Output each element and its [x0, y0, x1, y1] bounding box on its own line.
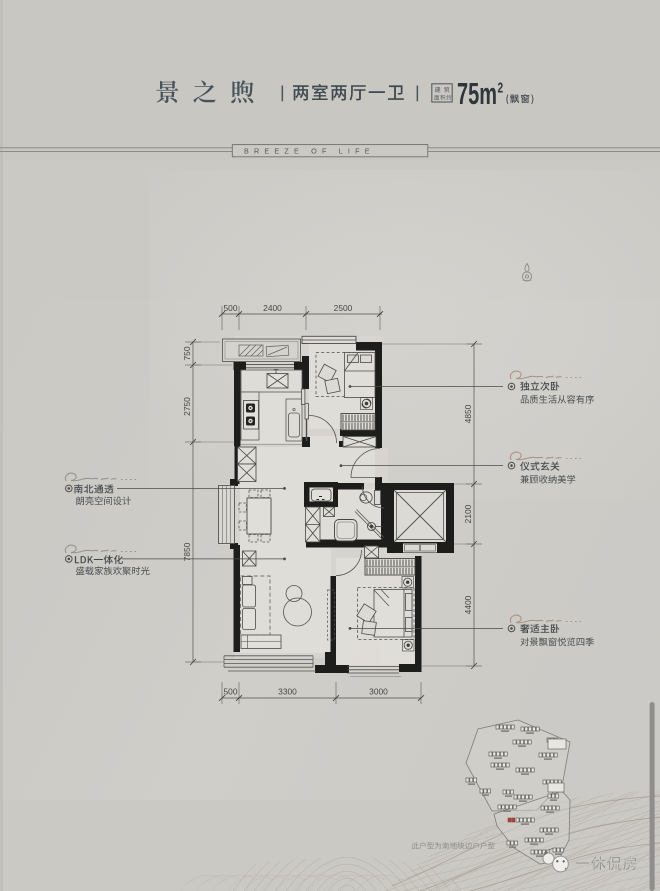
- svg-text:3000: 3000: [369, 687, 388, 697]
- svg-text:2400: 2400: [263, 303, 282, 313]
- svg-text:75m: 75m: [457, 78, 497, 111]
- svg-text:500: 500: [224, 687, 238, 697]
- svg-text:2100: 2100: [463, 504, 473, 523]
- svg-text:3300: 3300: [278, 687, 297, 697]
- svg-text:7850: 7850: [182, 542, 192, 561]
- svg-text:BREEZE OF LIFE: BREEZE OF LIFE: [244, 146, 375, 155]
- svg-text:4400: 4400: [463, 595, 473, 614]
- svg-text:4850: 4850: [463, 404, 473, 423]
- svg-text:2: 2: [498, 80, 504, 96]
- svg-text:750: 750: [182, 346, 192, 360]
- svg-text:500: 500: [224, 303, 238, 313]
- svg-text:2500: 2500: [334, 303, 353, 313]
- svg-text:2750: 2750: [182, 397, 192, 416]
